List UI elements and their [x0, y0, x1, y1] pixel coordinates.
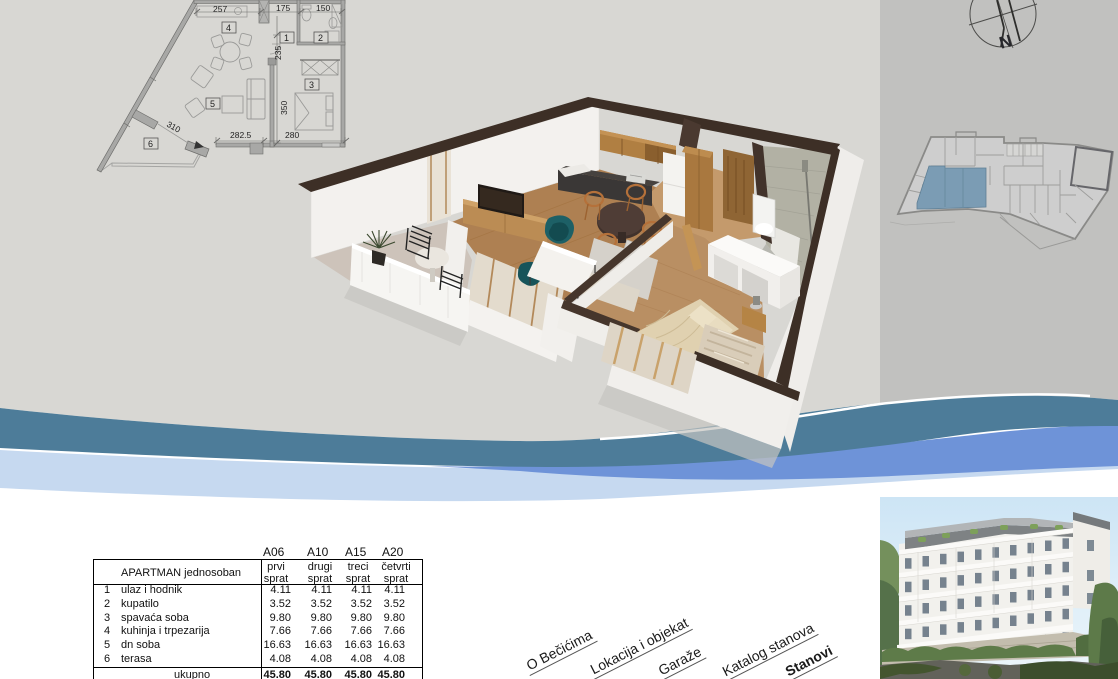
svg-text:235: 235: [273, 46, 283, 60]
svg-text:310: 310: [165, 119, 182, 135]
svg-text:350: 350: [279, 101, 289, 115]
svg-text:6: 6: [148, 139, 153, 149]
svg-text:282.5: 282.5: [230, 130, 252, 140]
svg-text:N: N: [997, 31, 1014, 53]
svg-text:1: 1: [284, 33, 289, 43]
svg-text:2: 2: [318, 33, 323, 43]
svg-text:5: 5: [210, 99, 215, 109]
svg-text:3: 3: [309, 80, 314, 90]
svg-text:257: 257: [213, 4, 227, 14]
svg-text:150: 150: [316, 3, 330, 13]
svg-text:175: 175: [276, 3, 290, 13]
svg-text:4: 4: [226, 23, 231, 33]
svg-text:280: 280: [285, 130, 299, 140]
